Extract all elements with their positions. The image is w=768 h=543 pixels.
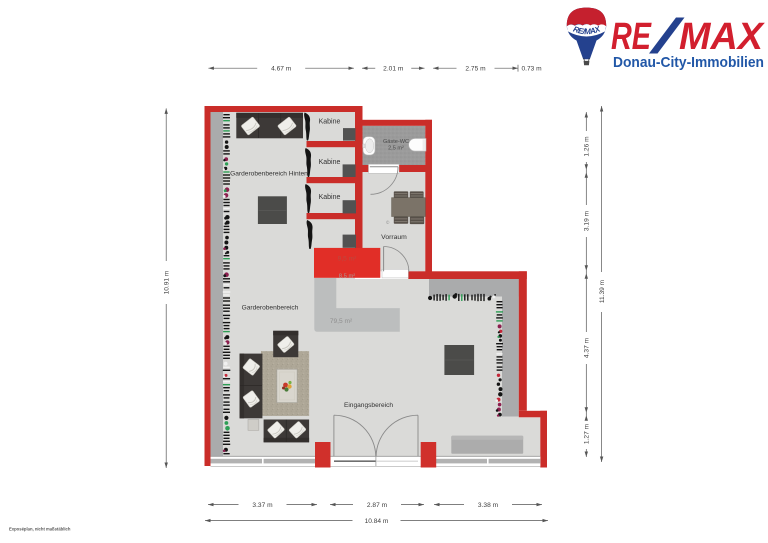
svg-text:Kabine: Kabine <box>319 119 341 126</box>
svg-text:3.37 m: 3.37 m <box>252 502 273 509</box>
svg-text:2,5 m²: 2,5 m² <box>388 146 404 152</box>
svg-text:8,5 m²: 8,5 m² <box>339 273 355 279</box>
svg-text:3.38 m: 3.38 m <box>478 502 499 509</box>
svg-text:Garderobenbereich Hinten: Garderobenbereich Hinten <box>230 171 308 178</box>
svg-text:79,5 m²: 79,5 m² <box>330 318 353 325</box>
svg-text:Exposéplan, nicht maßstäblich: Exposéplan, nicht maßstäblich <box>9 527 71 532</box>
svg-text:1.26 m: 1.26 m <box>584 136 591 157</box>
svg-text:10.84 m: 10.84 m <box>365 518 389 525</box>
svg-text:2.75 m: 2.75 m <box>465 66 486 73</box>
svg-text:4.67 m: 4.67 m <box>271 66 292 73</box>
svg-text:9,5 m²: 9,5 m² <box>338 256 357 263</box>
svg-text:Kabine: Kabine <box>319 159 341 166</box>
svg-text:RE: RE <box>611 16 652 58</box>
svg-text:Vorraum: Vorraum <box>381 234 407 241</box>
svg-text:3.19 m: 3.19 m <box>584 210 591 231</box>
svg-text:1.27 m: 1.27 m <box>584 423 591 444</box>
svg-text:10.91 m: 10.91 m <box>164 270 171 294</box>
svg-text:Garderobenbereich: Garderobenbereich <box>242 305 299 312</box>
svg-text:2.01 m: 2.01 m <box>383 66 404 73</box>
svg-text:0.73 m: 0.73 m <box>522 66 543 73</box>
svg-text:MAX: MAX <box>679 16 766 58</box>
svg-text:Eingangsbereich: Eingangsbereich <box>344 402 393 409</box>
svg-text:2.87 m: 2.87 m <box>367 502 388 509</box>
svg-text:Donau-City-Immobilien: Donau-City-Immobilien <box>613 55 764 71</box>
svg-text:Gäste-WC: Gäste-WC <box>383 139 409 145</box>
svg-text:4.37 m: 4.37 m <box>584 337 591 358</box>
svg-text:11.39 m: 11.39 m <box>599 279 606 303</box>
svg-text:Kabine: Kabine <box>319 194 341 201</box>
